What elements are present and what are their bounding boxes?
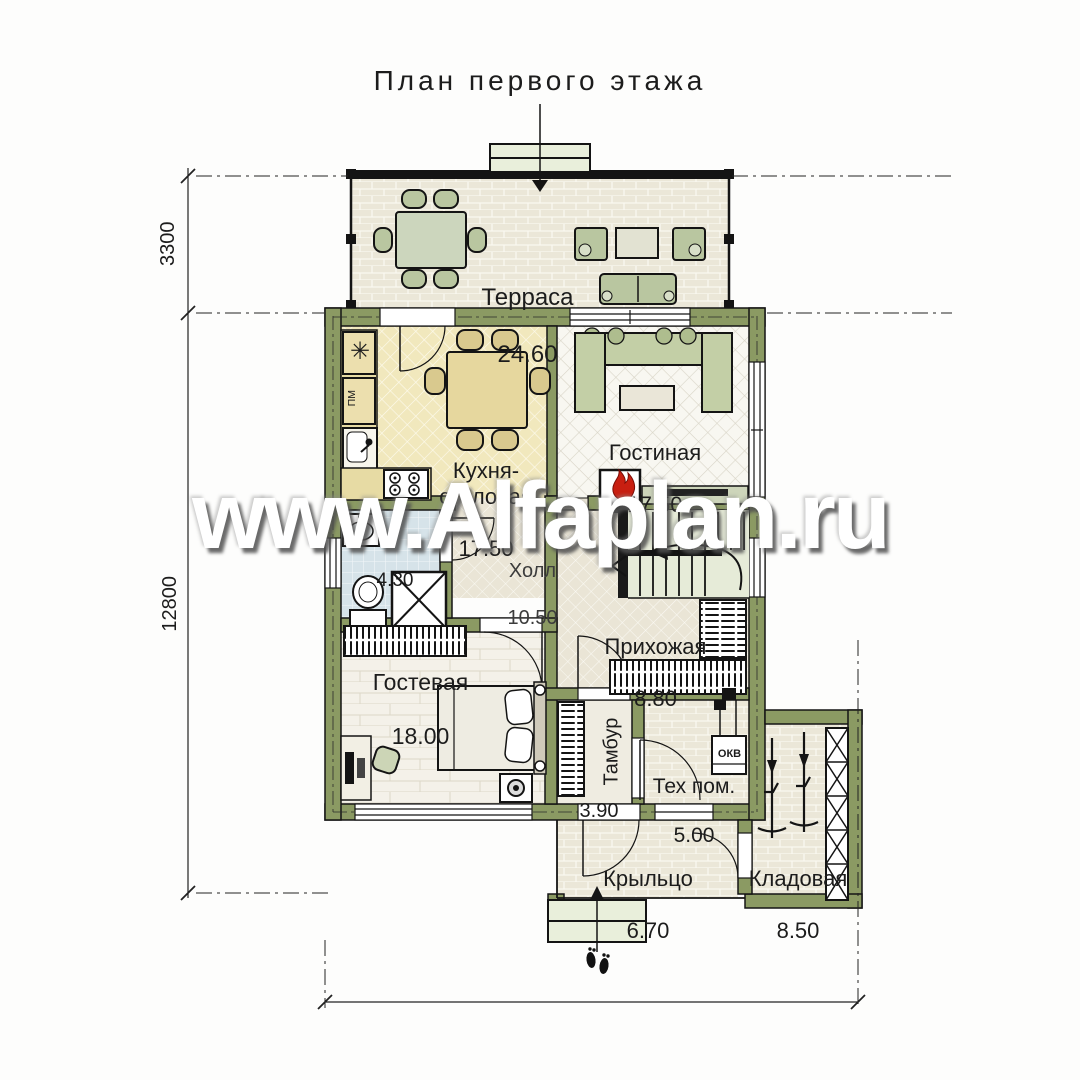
watermark: www.Alfaplan.ru (90, 462, 990, 571)
dimension-terrace-depth: 3300 (157, 209, 181, 279)
coffee-table (620, 386, 674, 410)
fridge-icon: ✳ (346, 338, 374, 366)
room-label-porch: Крыльцо 6.70 (592, 840, 704, 970)
page-title: План первого этажа (240, 64, 840, 97)
room-label-storage: Кладовая 8.50 (736, 840, 860, 970)
room-label-guest: Гостевая 18.00 (348, 642, 493, 778)
boiler-label: ОКВ (713, 748, 746, 761)
dimension-house-length: 12800 (159, 559, 183, 649)
room-label-tambour-area: 3.90 (568, 776, 630, 823)
room-label-terrace: Терраса 24.60 (440, 256, 615, 398)
floor-plan-page: План первого этажа Терраса 24.60 Кухня-с… (0, 0, 1080, 1080)
dishwasher-label: ПМ (346, 381, 358, 415)
